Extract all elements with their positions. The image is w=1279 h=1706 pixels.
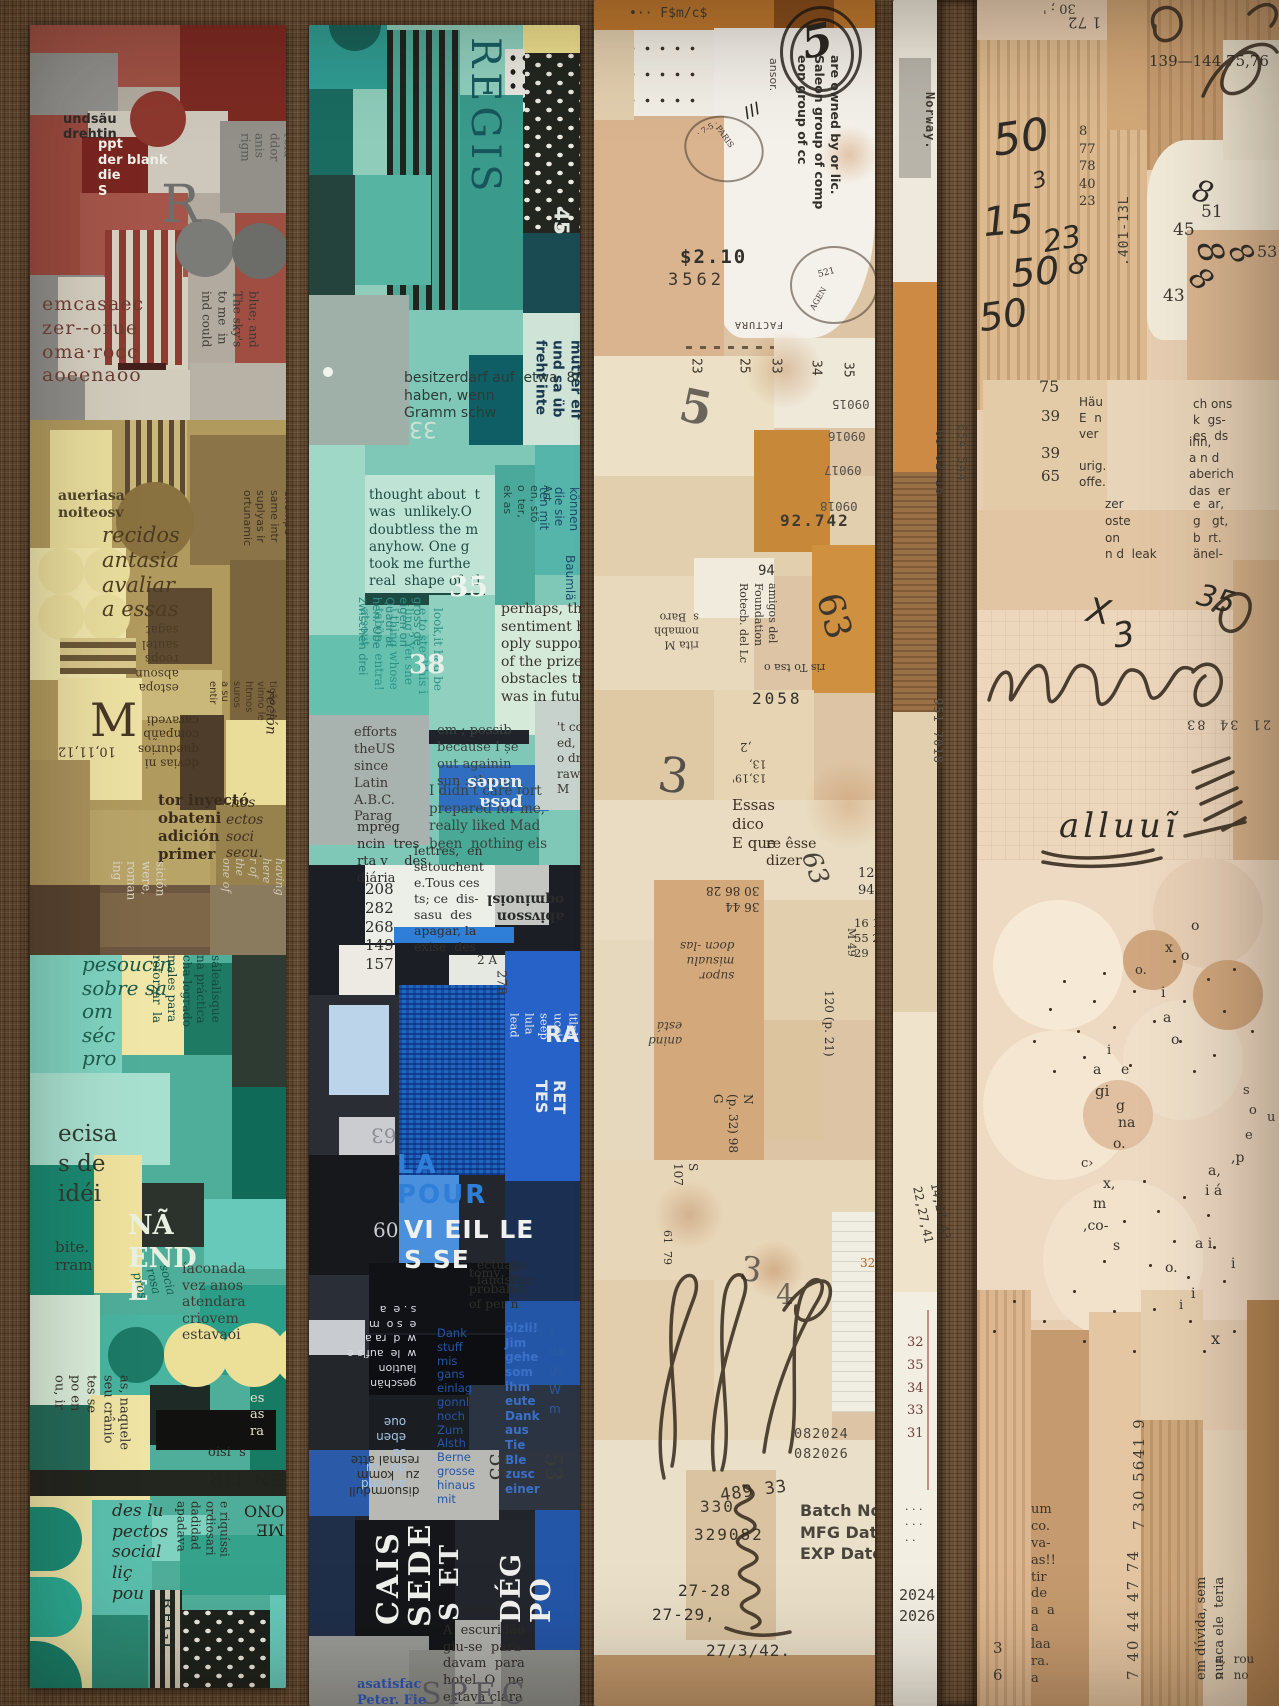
text-fragment: N (p. 32) 98 G	[710, 1094, 755, 1153]
text-fragment: $2.10	[680, 246, 747, 268]
text-fragment: blue; and The sky's to me in ind could	[198, 291, 260, 348]
postmark-text: AGEN	[808, 286, 829, 312]
text-fragment: sálealisque na práctica cha logrado male…	[150, 955, 223, 1027]
handwritten-word: alluuĩ	[1059, 806, 1180, 846]
text-fragment: asatisfac Peter. Fie	[357, 1677, 426, 1706]
handwritten-number: 50	[976, 290, 1030, 341]
text-fragment: er ode ren das können die sie ten mit	[537, 487, 580, 532]
text-fragment: 09016	[828, 428, 866, 443]
text-fragment: a	[1163, 1010, 1171, 1027]
text-fragment: estopa absoun reops sautel sagat	[135, 623, 179, 695]
text-fragment: roid ddor anis rigm	[238, 133, 286, 162]
text-fragment: LA POUR	[397, 1151, 487, 1211]
handwritten-number: 3	[737, 1248, 765, 1291]
text-fragment: 3 6	[993, 1635, 1003, 1689]
text-fragment: a,	[1208, 1163, 1221, 1180]
text-fragment: na	[1118, 1115, 1135, 1132]
washi-strip-vintage-beige: •·· F$m/c$ansor.are owned by or lic. Sal…	[594, 0, 875, 1706]
text-fragment: e	[1121, 1062, 1129, 1079]
text-fragment: REGI	[157, 1597, 177, 1651]
text-fragment: bite. rram	[55, 1238, 93, 1274]
text-fragment: 32 35 34 33 31	[907, 1332, 924, 1446]
text-fragment: perhaps, thi sentiment h oply support of…	[501, 601, 580, 706]
text-fragment: 27-29,	[652, 1606, 716, 1625]
postmark-text: 521	[817, 266, 836, 281]
text-fragment: FACTURA	[734, 318, 783, 330]
handwritten-number: 50	[1009, 248, 1061, 297]
text-fragment: sición were, roman ing	[110, 861, 168, 900]
text-fragment: efforts theUS since Latin A.B.C. Parag	[354, 725, 397, 826]
text-fragment: M	[90, 693, 137, 747]
text-fragment: g	[1116, 1098, 1125, 1115]
text-fragment: i	[1179, 1298, 1183, 1313]
text-fragment: are owned by or lic. Saleon group of com…	[794, 55, 843, 209]
text-fragment: 278	[493, 970, 508, 995]
handwritten-number: 15	[981, 196, 1036, 247]
text-fragment: anind está	[648, 1018, 682, 1048]
batch-label: Batch No. : MFG Date : EXP Date :	[800, 1500, 875, 1565]
text-fragment: a, rou o no	[1215, 1652, 1254, 1683]
text-fragment: RET TES	[533, 1080, 568, 1114]
text-fragment: 330	[700, 1498, 735, 1517]
text-fragment: 45	[549, 207, 573, 235]
text-fragment: emcasaec zer--orue oma·rocc aoeenaoo	[42, 293, 144, 388]
text-fragment: 63	[806, 589, 859, 644]
text-fragment: o	[1249, 1103, 1257, 1118]
text-fragment: 27/3/42.	[706, 1642, 791, 1661]
text-fragment: 55	[483, 1453, 509, 1481]
text-fragment: i	[1231, 1256, 1235, 1273]
text-fragment: disuormdull zu komm resmal atte	[349, 1451, 419, 1498]
text-fragment: o	[1171, 1032, 1179, 1049]
text-fragment: s	[1243, 1083, 1250, 1098]
text-fragment: 09015	[832, 396, 870, 411]
text-fragment: supor misualu docn -las	[680, 938, 734, 983]
text-fragment: 25	[736, 358, 751, 374]
handwritten-number: 3	[1030, 167, 1050, 196]
text-fragment: recidos antasia avaliar a essas	[102, 523, 180, 622]
text-fragment: ME ONO	[244, 1501, 284, 1539]
text-fragment: amigos del Foundation Rotecb. del Lc	[736, 583, 779, 663]
text-fragment: 34	[808, 360, 823, 376]
burlap-background: undsäu drehtinppt der blank die SRroid d…	[0, 0, 1279, 1706]
text-fragment: zer oste on n d leak	[1105, 496, 1157, 563]
text-fragment: i	[1191, 1286, 1195, 1303]
handwritten-number: 35	[1193, 578, 1239, 622]
text-fragment: Häu E n ver	[1079, 394, 1103, 443]
text-fragment: 09-02-16	[933, 430, 947, 496]
text-fragment: e	[1245, 1128, 1253, 1143]
text-fragment: SPEC	[421, 1677, 531, 1706]
handwritten-number: 50	[990, 108, 1053, 167]
text-fragment: 951 7018	[931, 698, 945, 764]
text-fragment: S 107	[670, 1163, 700, 1186]
text-fragment: ,co-	[1083, 1218, 1108, 1235]
text-fragment: o	[1181, 948, 1189, 965]
text-fragment: 3562	[668, 270, 725, 290]
text-fragment: 12 94	[858, 866, 875, 900]
text-fragment: •·· F$m/c$	[629, 6, 707, 21]
text-fragment: Baumlä	[563, 555, 577, 601]
text-fragment: 2024 2026	[899, 1585, 935, 1627]
text-fragment: ppt der blank die S	[98, 137, 168, 199]
text-fragment: 4	[776, 1278, 794, 1311]
text-fragment: enempe same intr suplyas ir ortunamic	[240, 490, 286, 546]
washi-strip-red-olive-teal: undsäu drehtinppt der blank die SRroid d…	[30, 25, 286, 1688]
text-fragment: 2 A	[477, 953, 497, 967]
text-fragment: 8 77 78 40 23	[1079, 123, 1096, 211]
text-fragment: 53	[539, 1453, 565, 1481]
text-fragment: 35	[840, 362, 855, 378]
text-fragment: um co. va- as!! tir de a a a laa ra. a	[1031, 1502, 1056, 1688]
text-fragment: ectualsi landscap	[477, 1257, 533, 1287]
text-fragment: x	[1165, 940, 1173, 957]
text-fragment: 39 65	[1041, 442, 1060, 487]
text-fragment: 7 40 44 47 74	[1125, 1549, 1143, 1680]
text-fragment: 't coq ed, al o dra raw m M	[557, 720, 580, 798]
text-fragment: rita M nomabh s Baro	[654, 610, 699, 651]
text-fragment: 33	[768, 358, 783, 374]
text-fragment: ales. par nom neto itlpl ucci seep lula …	[507, 1013, 580, 1040]
text-fragment: M 49	[844, 928, 857, 957]
text-fragment: e riquíssi ordiosari dadidad apadava	[174, 1501, 232, 1557]
text-fragment: S ET	[435, 1542, 466, 1621]
text-fragment: -nos ectos soci secu.	[226, 795, 263, 862]
handwritten-mark: X	[1084, 590, 1114, 634]
text-fragment: gi	[1095, 1083, 1109, 1101]
handwritten-number: 3	[654, 746, 692, 806]
postmark-text: · 7-5 ·	[695, 119, 720, 139]
text-fragment: CAIS	[371, 1530, 406, 1625]
text-fragment: Norway.	[923, 92, 937, 150]
text-fragment: u	[1267, 1110, 1275, 1125]
text-fragment: m	[1093, 1196, 1106, 1213]
text-fragment: REGIS	[461, 37, 508, 196]
text-fragment: 94	[758, 563, 775, 580]
text-fragment: oisi s	[208, 1445, 246, 1460]
text-fragment: urig. offe.	[1079, 458, 1106, 490]
text-fragment: 35	[449, 570, 488, 603]
text-fragment: lettres, en setouchent e.Tous ces ts; ce…	[414, 843, 484, 955]
text-fragment: o	[1191, 918, 1199, 935]
text-fragment: a i	[1195, 1236, 1212, 1253]
text-fragment: ölzli! Jim gehe som ihm eute Dank aus Ti…	[505, 1321, 540, 1497]
text-fragment: ecisa s de idéi	[58, 1120, 117, 1210]
text-fragment: 43	[1163, 286, 1185, 306]
text-fragment: 09	[373, 1217, 398, 1241]
washi-strip-handwritten-tan: Norway.09-02-16654 544951 701814,27,43 2…	[893, 0, 1279, 1706]
text-fragment: 082024 082026	[794, 1424, 849, 1465]
text-fragment: 7 30 5641 9	[1131, 1417, 1149, 1530]
text-fragment: s	[1113, 1238, 1120, 1255]
text-fragment: 36 44 30 86 28	[706, 883, 759, 914]
text-fragment: EN TIR	[208, 1468, 284, 1488]
text-fragment: 2058	[752, 690, 803, 709]
text-fragment: pesa uades	[467, 773, 523, 812]
text-fragment: aueriasa noiteosv	[58, 488, 125, 522]
text-fragment: 10,11,12	[58, 743, 116, 758]
handwritten-number: 5	[675, 377, 718, 437]
text-fragment: 92.742	[780, 512, 850, 531]
text-fragment: ,2	[740, 740, 751, 754]
text-fragment: reción	[262, 690, 279, 735]
text-fragment: ansor.	[766, 58, 779, 91]
text-fragment: des lu pectos social liç pou	[112, 1501, 168, 1605]
text-fragment: Dank stuff mis gans einlag gonnl noch Zu…	[437, 1327, 475, 1506]
text-fragment: SEDE	[403, 1522, 438, 1627]
handwritten-number: 3	[1110, 613, 1138, 656]
text-fragment: 139—144 75,76	[1149, 53, 1269, 71]
washi-strip-teal-blue: REGISmutter elf und sa üb freht inte45gr…	[309, 25, 580, 1706]
text-fragment: DÉG PO	[497, 1553, 556, 1623]
text-fragment: o.	[1165, 1260, 1178, 1277]
text-fragment: 32	[860, 1256, 875, 1270]
text-fragment: 63	[371, 1123, 396, 1147]
text-fragment: as, naquele seu crânio tes se po en ou, …	[50, 1375, 131, 1450]
text-fragment: a	[1093, 1062, 1101, 1079]
text-fragment: i á	[1205, 1183, 1222, 1200]
text-fragment: R	[161, 175, 200, 236]
text-fragment: 654 544	[955, 424, 969, 482]
text-fragment: 61 79	[660, 1230, 673, 1265]
text-fragment: 27-28	[678, 1582, 731, 1601]
text-fragment: .401-13L	[1117, 195, 1132, 266]
text-fragment: ///	[741, 99, 763, 122]
text-fragment: es as ra	[250, 1391, 264, 1440]
text-fragment: 45	[1173, 220, 1195, 240]
text-fragment: 09017	[824, 462, 862, 477]
text-fragment: 33	[409, 415, 437, 441]
text-fragment: abivsson oqmiuoisl	[487, 891, 564, 925]
text-fragment: 23	[688, 358, 703, 374]
text-fragment: having here r of the one of	[220, 858, 286, 896]
text-fragment: 14,27,43 22,27,41	[908, 1181, 955, 1245]
text-fragment: 39	[1041, 408, 1060, 426]
text-fragment: x,	[1103, 1176, 1115, 1193]
text-fragment: 13,19' 13,	[732, 756, 767, 785]
text-fragment: ihn, a n d aberich das er	[1189, 434, 1234, 499]
text-fragment: s ua go W m	[549, 1323, 564, 1419]
handwritten-number: 8	[1181, 260, 1220, 299]
text-fragment: e ar, g gt, b rt. änel-	[1193, 496, 1228, 563]
text-fragment: 21 34 83	[1185, 716, 1271, 731]
text-fragment: x	[1211, 1330, 1220, 1349]
text-fragment: o.	[1135, 963, 1147, 978]
text-fragment: 208 282 268 149 157	[365, 880, 394, 974]
text-fragment: 1 72	[1068, 13, 1101, 31]
text-fragment: ,p	[1231, 1150, 1244, 1167]
text-fragment: 120 (p. 21)	[822, 990, 836, 1057]
text-fragment: geschän laution w le auf's e w d ra a e …	[347, 1301, 416, 1390]
text-fragment: o.	[1113, 1136, 1126, 1153]
text-fragment: i	[1161, 985, 1165, 1002]
text-fragment: · · · · · · · ·	[905, 1502, 922, 1548]
text-fragment: 75	[1039, 378, 1059, 397]
text-fragment: ris To tsa o	[764, 660, 825, 673]
text-fragment: c›	[1081, 1156, 1093, 1171]
text-fragment: 329082	[694, 1526, 764, 1545]
text-fragment: devias ni quedurios compañb caravedi	[138, 713, 199, 771]
text-fragment: 38	[409, 650, 445, 681]
text-fragment: íaconada vez anos atendara criovem estav…	[182, 1261, 246, 1344]
text-fragment: i	[1107, 1043, 1111, 1058]
